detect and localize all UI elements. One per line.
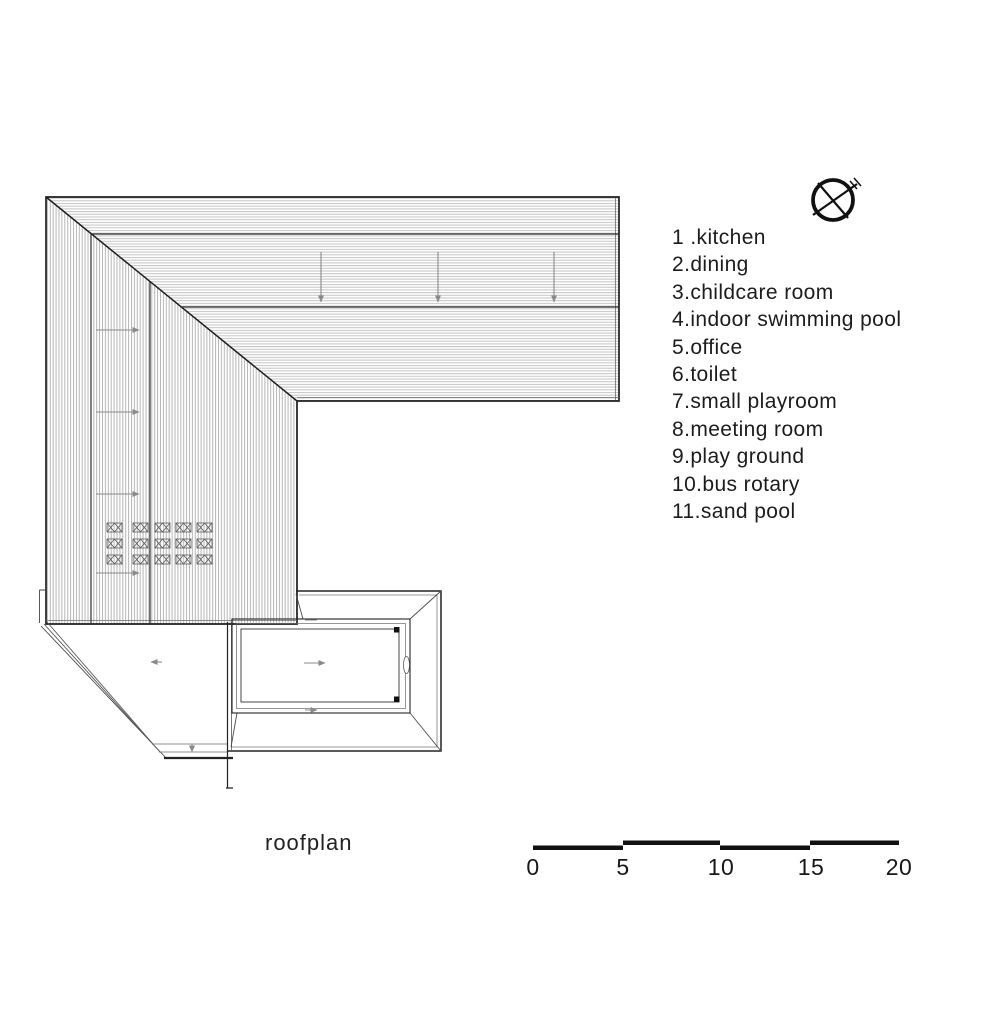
drawing-caption: roofplan [265, 830, 353, 856]
legend: 1 .kitchen 2.dining 3.childcare room 4.i… [672, 224, 922, 525]
legend-item-dining: 2.dining [672, 251, 922, 278]
pool-ladder-icon [404, 657, 410, 674]
scale-label-10: 10 [708, 854, 735, 881]
pool-corner-marker [394, 697, 400, 703]
roofplan-sheet: 1 .kitchen 2.dining 3.childcare room 4.i… [0, 0, 1000, 1018]
north-compass-icon [813, 178, 861, 220]
scale-label-20: 20 [886, 854, 913, 881]
legend-item-childcare-room: 3.childcare room [672, 279, 922, 306]
scale-bar [533, 841, 899, 851]
legend-item-small-playroom: 7.small playroom [672, 388, 922, 415]
legend-item-bus-rotary: 10.bus rotary [672, 471, 922, 498]
pool-corner-marker [394, 627, 400, 633]
scale-label-15: 15 [798, 854, 825, 881]
legend-item-office: 5.office [672, 334, 922, 361]
scale-label-0: 0 [526, 854, 539, 881]
legend-item-toilet: 6.toilet [672, 361, 922, 388]
legend-item-sand-pool: 11.sand pool [672, 498, 922, 525]
scale-label-5: 5 [616, 854, 629, 881]
legend-item-kitchen: 1 .kitchen [672, 224, 922, 251]
legend-item-indoor-pool: 4.indoor swimming pool [672, 306, 922, 333]
legend-item-meeting-room: 8.meeting room [672, 416, 922, 443]
legend-item-play-ground: 9.play ground [672, 443, 922, 470]
